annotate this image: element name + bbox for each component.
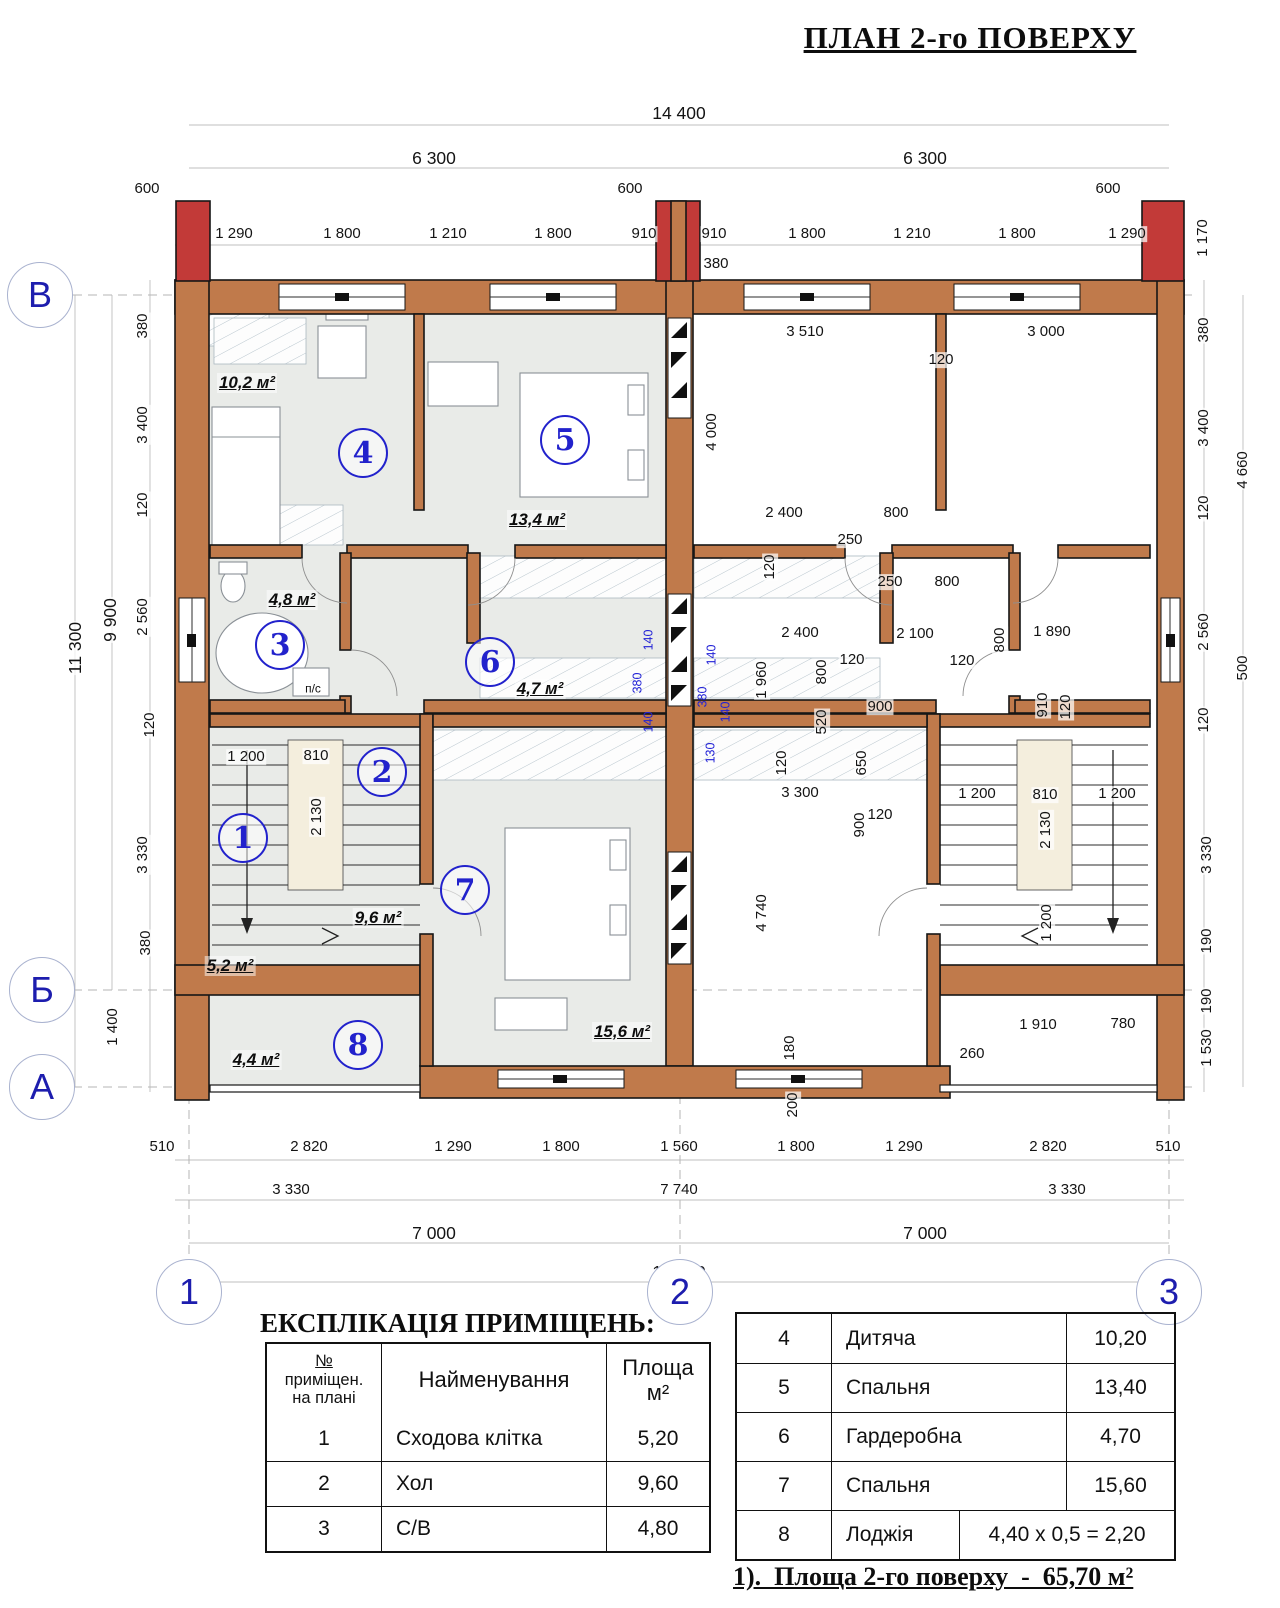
- dim-label: 4 660: [1235, 450, 1251, 490]
- room-area-cell: 9,60: [607, 1461, 709, 1506]
- vent-shafts: [668, 318, 691, 964]
- room-name-cell: Дитяча: [832, 1314, 1067, 1363]
- room-name-cell: С/В: [382, 1506, 607, 1551]
- dim-label: 1 960: [754, 660, 770, 700]
- dim-label: 140: [705, 644, 718, 667]
- dim-label: 1 200: [226, 749, 266, 765]
- dim-label: 120: [1196, 706, 1212, 733]
- room-area-cell: 15,60: [1067, 1461, 1174, 1510]
- dim-label: 1 560: [659, 1139, 699, 1155]
- dim-label: 250: [876, 574, 903, 590]
- dim-label: 130: [704, 742, 717, 765]
- dim-label: 2 400: [764, 505, 804, 521]
- dim-label: 4 740: [754, 893, 770, 933]
- room-area-label: 15,6 м²: [592, 1022, 652, 1042]
- dim-label: 510: [148, 1139, 175, 1155]
- room-number-cell: 4: [737, 1314, 832, 1363]
- dim-label: 2 100: [895, 626, 935, 642]
- room-number-circle: 4: [338, 428, 388, 478]
- dim-label: 380: [135, 312, 151, 339]
- dim-label: 14 400: [651, 104, 707, 122]
- dim-label: 1 800: [776, 1139, 816, 1155]
- dim-label: 2 560: [135, 597, 151, 637]
- dim-label: 2 560: [1196, 612, 1212, 652]
- col-header-number-sub: приміщен. на плані: [285, 1371, 364, 1409]
- dim-label: 510: [1154, 1139, 1181, 1155]
- legend-table-row: 6Гардеробна4,70: [737, 1412, 1174, 1461]
- room-area-label: 4,4 м²: [231, 1050, 282, 1070]
- dim-label: 3 400: [1196, 408, 1212, 448]
- dim-label: 800: [882, 505, 909, 521]
- dim-label: 250: [836, 532, 863, 548]
- dim-label: 3 400: [135, 405, 151, 445]
- room-name-cell: Хол: [382, 1461, 607, 1506]
- dim-label: 120: [838, 652, 865, 668]
- room-area-label: 5,2 м²: [205, 956, 256, 976]
- dim-label: 190: [1199, 927, 1215, 954]
- room-number-circle: 7: [440, 865, 490, 915]
- room-area-cell: 4,70: [1067, 1412, 1174, 1461]
- dim-label: 1 210: [428, 226, 468, 242]
- axis-circle: В: [7, 262, 73, 328]
- dim-label: 120: [866, 807, 893, 823]
- room-area-label: 4,7 м²: [515, 679, 566, 699]
- dim-label: 120: [927, 352, 954, 368]
- room-number-circle: 3: [255, 620, 305, 670]
- dim-label: 800: [933, 574, 960, 590]
- dim-label: 1 800: [787, 226, 827, 242]
- dim-label: 1 400: [105, 1007, 121, 1047]
- legend-table-row: 1Сходова клітка5,20: [267, 1416, 709, 1461]
- room-area-label: 10,2 м²: [217, 373, 277, 393]
- dim-label: 120: [1058, 693, 1074, 720]
- dim-label: 500: [1235, 654, 1251, 681]
- dim-label: 1 800: [997, 226, 1037, 242]
- axis-circle: Б: [9, 957, 75, 1023]
- dim-label: 140: [719, 701, 732, 724]
- col-header-number-symbol: №: [315, 1352, 333, 1371]
- dim-label: 1 210: [892, 226, 932, 242]
- room-number-circle: 8: [333, 1020, 383, 1070]
- legend-table-row: 3С/В4,80: [267, 1506, 709, 1551]
- dim-label: 600: [1094, 181, 1121, 197]
- dim-label: 380: [138, 929, 154, 956]
- room-number-circle: 2: [357, 747, 407, 797]
- dim-label: 1 290: [884, 1139, 924, 1155]
- dim-label: 800: [814, 658, 830, 685]
- dim-label: 6 300: [902, 149, 948, 167]
- col-header-area: Площа м²: [607, 1344, 709, 1416]
- dim-label: 3 510: [785, 324, 825, 340]
- dim-label: 190: [1199, 987, 1215, 1014]
- dim-label: 120: [948, 653, 975, 669]
- room-number-circle: 6: [465, 637, 515, 687]
- dim-label: 2 400: [780, 625, 820, 641]
- dim-label: 3 330: [1199, 835, 1215, 875]
- dim-label: 9 900: [101, 597, 119, 643]
- dim-label: 260: [958, 1046, 985, 1062]
- dim-label: 3 330: [135, 835, 151, 875]
- dim-label: 780: [1109, 1016, 1136, 1032]
- dim-label: 1 290: [1107, 226, 1147, 242]
- legend-table-row: 7Спальня15,60: [737, 1461, 1174, 1510]
- dim-label: 800: [992, 626, 1008, 653]
- dim-label: 200: [785, 1091, 801, 1118]
- dim-label: 2 820: [289, 1139, 329, 1155]
- legend-table-left: № приміщен. на плані Найменування Площа …: [265, 1342, 711, 1553]
- dim-label: 1 200: [1097, 786, 1137, 802]
- dim-label: 140: [642, 711, 655, 734]
- room-number-cell: 7: [737, 1461, 832, 1510]
- dim-label: 1 890: [1032, 624, 1072, 640]
- room-area-label: 4,8 м²: [267, 590, 318, 610]
- dim-label: 120: [142, 711, 158, 738]
- dim-label: 3 000: [1026, 324, 1066, 340]
- dim-label: 7 740: [659, 1182, 699, 1198]
- dim-label: 2 130: [309, 797, 325, 837]
- dim-label: 380: [1196, 316, 1212, 343]
- dim-label: 520: [814, 708, 830, 735]
- dim-label: 900: [866, 699, 893, 715]
- dim-label: 3 330: [1047, 1182, 1087, 1198]
- room-number-cell: 8: [737, 1510, 832, 1559]
- dim-label: 810: [1031, 787, 1058, 803]
- room-name-cell: Сходова клітка: [382, 1416, 607, 1461]
- dim-label: 910: [630, 226, 657, 242]
- room-number-circle: 5: [540, 415, 590, 465]
- dim-label: 1 170: [1195, 218, 1211, 258]
- dim-label: 3 300: [780, 785, 820, 801]
- dim-label: 1 800: [541, 1139, 581, 1155]
- dim-label: 380: [702, 256, 729, 272]
- col-header-number: № приміщен. на плані: [267, 1344, 382, 1416]
- floor-area-note: 1). Площа 2-го поверху - 65,70 м²: [733, 1562, 1273, 1592]
- dim-label: 11 300: [66, 621, 84, 675]
- room-number-cell: 3: [267, 1506, 382, 1551]
- floor-plan: .fl{fill:#e9ebe8;} .bgst{fill:#f4eedd;st…: [0, 0, 1280, 1300]
- legend-heading: ЕКСПЛІКАЦІЯ ПРИМІЩЕНЬ:: [260, 1308, 655, 1339]
- legend-table-row: 8Лоджія4,40 х 0,5 = 2,20: [737, 1510, 1174, 1559]
- legend-table-left-header: № приміщен. на плані Найменування Площа …: [267, 1344, 709, 1416]
- dim-label: 1 290: [433, 1139, 473, 1155]
- legend-table-right: 4Дитяча10,205Спальня13,406Гардеробна4,70…: [735, 1312, 1176, 1561]
- room-area-cell: 5,20: [607, 1416, 709, 1461]
- dim-label: 380: [631, 672, 644, 695]
- room-area-cell: 4,80: [607, 1506, 709, 1551]
- room-area-label: 13,4 м²: [507, 510, 567, 530]
- dim-label: 6 300: [411, 149, 457, 167]
- dim-label: п/с: [304, 683, 322, 696]
- dim-label: 910: [1035, 691, 1051, 718]
- dim-label: 1 800: [533, 226, 573, 242]
- axis-circle: А: [9, 1054, 75, 1120]
- col-header-name: Найменування: [382, 1344, 607, 1416]
- dim-label: 1 910: [1018, 1017, 1058, 1033]
- dim-label: 4 000: [704, 412, 720, 452]
- dim-label: 1 200: [957, 786, 997, 802]
- axis-circle: 2: [647, 1259, 713, 1325]
- dim-label: 380: [696, 686, 709, 709]
- room-number-cell: 5: [737, 1363, 832, 1412]
- dim-label: 7 000: [411, 1224, 457, 1242]
- room-name-cell: Спальня: [832, 1363, 1067, 1412]
- dim-label: 1 530: [1199, 1028, 1215, 1068]
- axis-circle: 1: [156, 1259, 222, 1325]
- dim-label: 1 290: [214, 226, 254, 242]
- room-name-cell: Лоджія: [832, 1510, 960, 1559]
- room-area-cell: 10,20: [1067, 1314, 1174, 1363]
- dim-label: 810: [302, 748, 329, 764]
- page: ПЛАН 2-го ПОВЕРХУ .fl{fill:#e9ebe8;} .bg…: [0, 0, 1280, 1608]
- room-area-label: 9,6 м²: [353, 908, 404, 928]
- dim-label: 180: [782, 1034, 798, 1061]
- dim-label: 120: [774, 749, 790, 776]
- room-name-cell: Спальня: [832, 1461, 1067, 1510]
- dim-label: 3 330: [271, 1182, 311, 1198]
- dim-label: 120: [762, 553, 778, 580]
- dim-label: 2 130: [1038, 810, 1054, 850]
- dim-label: 140: [642, 629, 655, 652]
- room-number-cell: 6: [737, 1412, 832, 1461]
- room-number-cell: 2: [267, 1461, 382, 1506]
- room-name-cell: Гардеробна: [832, 1412, 1067, 1461]
- dim-label: 650: [854, 749, 870, 776]
- room-number-circle: 1: [218, 813, 268, 863]
- dim-label: 1 200: [1039, 903, 1055, 943]
- legend-table-row: 4Дитяча10,20: [737, 1314, 1174, 1363]
- room-number-cell: 1: [267, 1416, 382, 1461]
- dim-label: 2 820: [1028, 1139, 1068, 1155]
- dim-label: 600: [616, 181, 643, 197]
- dim-label: 1 800: [322, 226, 362, 242]
- dim-label: 910: [700, 226, 727, 242]
- room-area-cell: 4,40 х 0,5 = 2,20: [960, 1510, 1174, 1559]
- dim-label: 120: [135, 491, 151, 518]
- legend-table-row: 5Спальня13,40: [737, 1363, 1174, 1412]
- dim-label: 600: [133, 181, 160, 197]
- dim-label: 7 000: [902, 1224, 948, 1242]
- legend-table-row: 2Хол9,60: [267, 1461, 709, 1506]
- dim-label: 120: [1196, 494, 1212, 521]
- room-area-cell: 13,40: [1067, 1363, 1174, 1412]
